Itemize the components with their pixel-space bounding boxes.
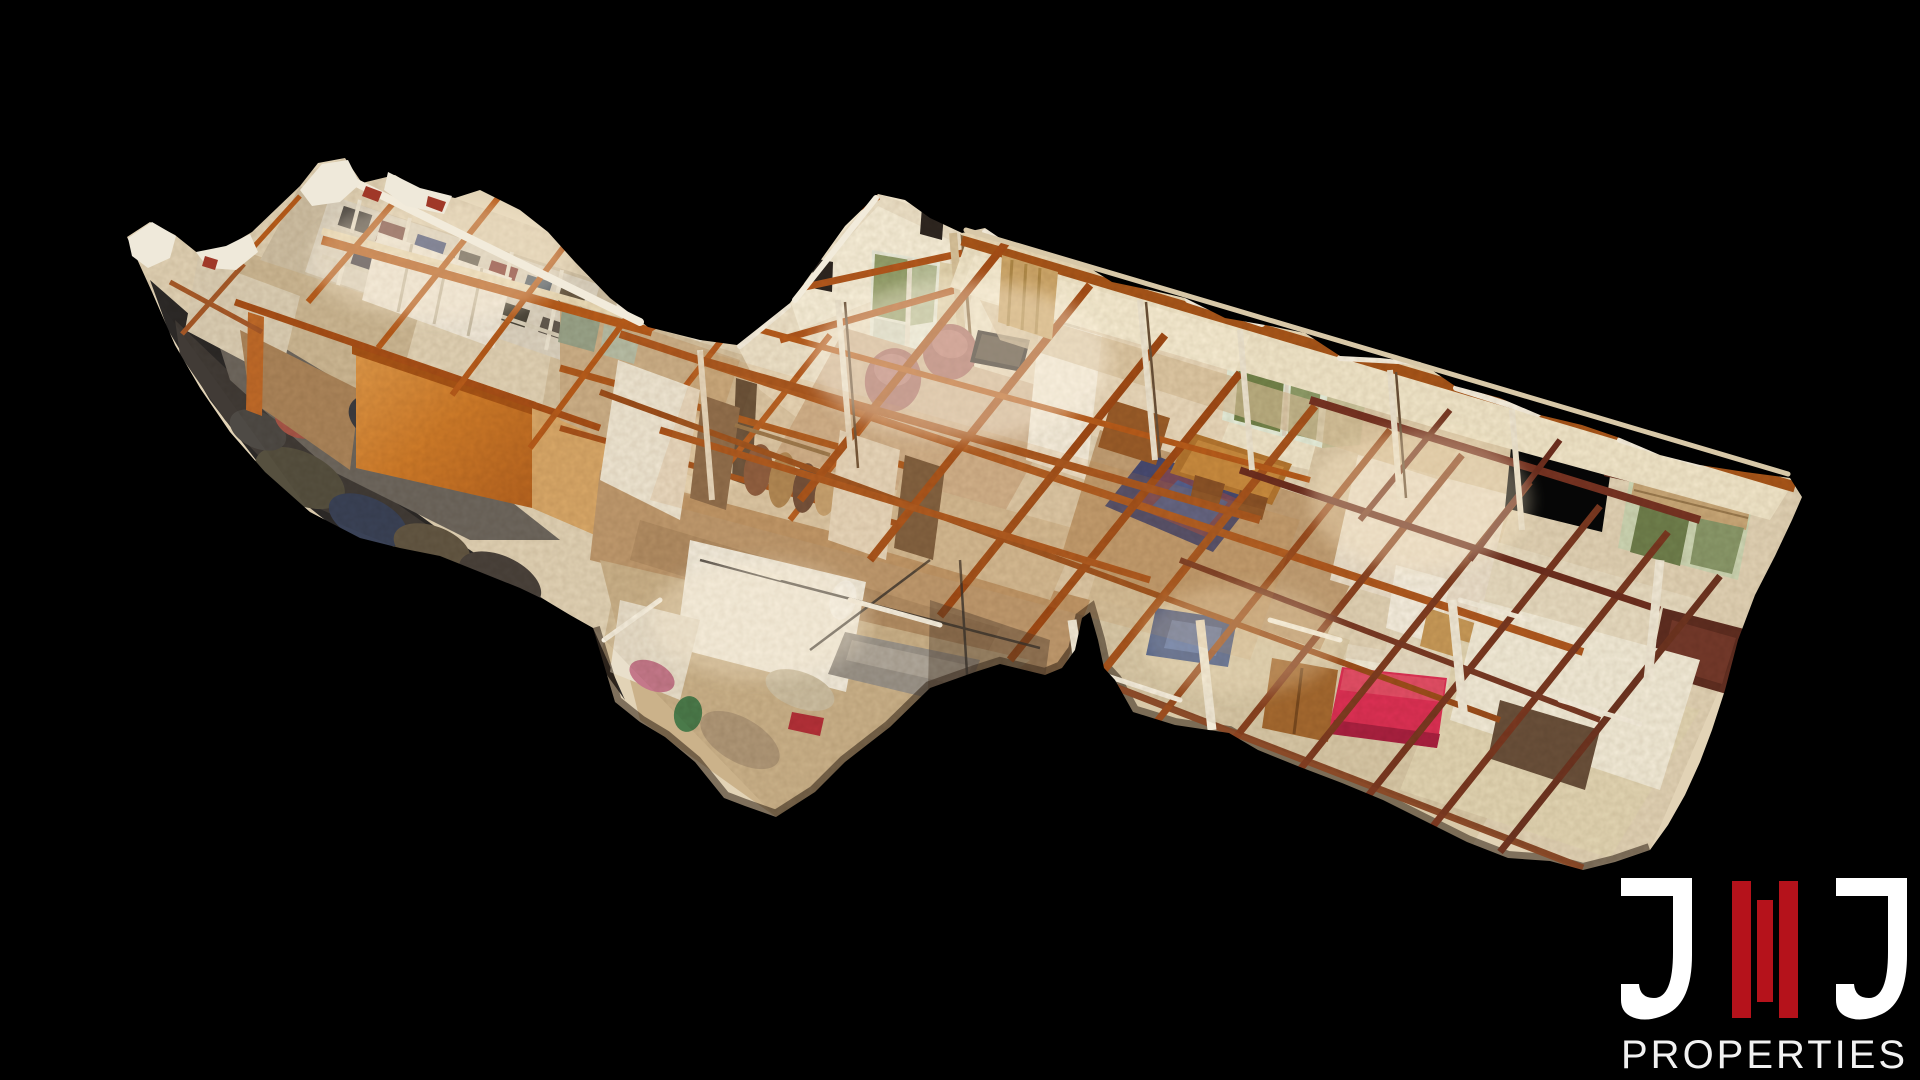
svg-text:PROPERTIES: PROPERTIES	[1621, 1033, 1908, 1077]
